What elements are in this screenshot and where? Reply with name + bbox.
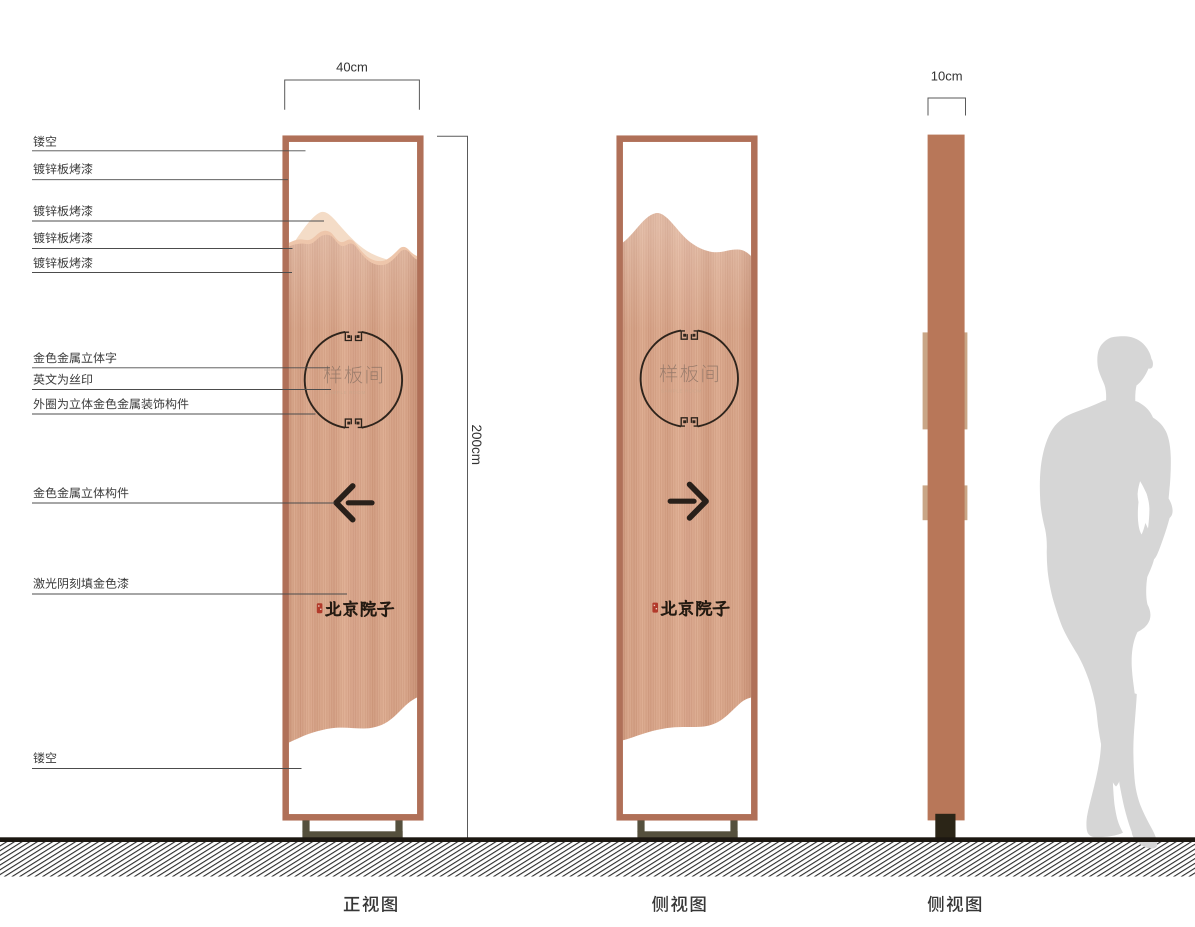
svg-text:200cm: 200cm xyxy=(469,425,484,466)
svg-text:40cm: 40cm xyxy=(336,60,368,75)
svg-text:10cm: 10cm xyxy=(931,69,963,84)
svg-text:SAMPLE ROOM: SAMPLE ROOM xyxy=(661,389,702,394)
svg-text:SAMPLE ROOM: SAMPLE ROOM xyxy=(325,390,366,395)
